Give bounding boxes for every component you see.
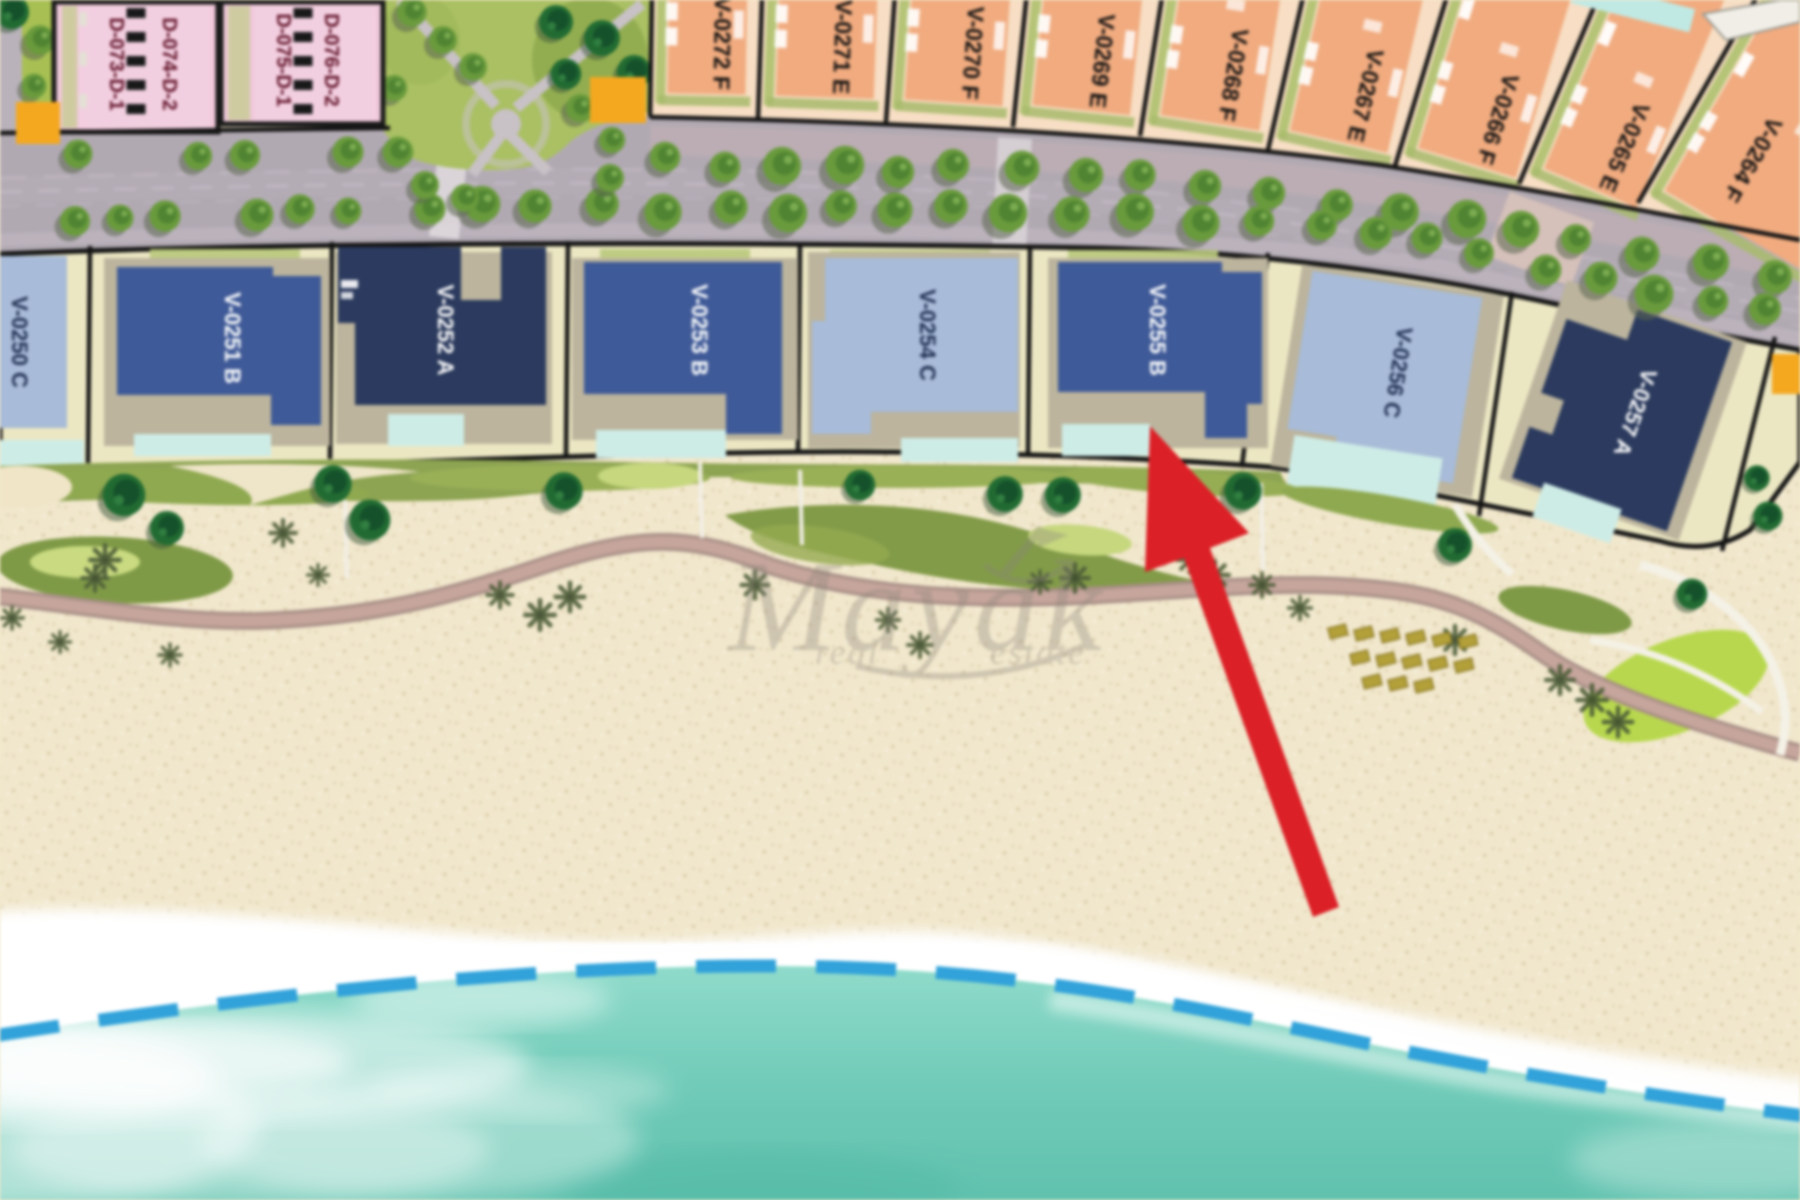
svg-text:D-076-D-2: D-076-D-2 xyxy=(320,13,342,106)
svg-text:V-0254 C: V-0254 C xyxy=(915,289,940,381)
svg-text:V-0250 C: V-0250 C xyxy=(7,296,32,388)
svg-text:real: real xyxy=(815,632,880,672)
svg-text:V-0272 F: V-0272 F xyxy=(708,0,736,90)
svg-text:D-075-D-1: D-075-D-1 xyxy=(272,13,294,106)
svg-text:V-0255 B: V-0255 B xyxy=(1145,284,1170,376)
svg-text:estate: estate xyxy=(990,632,1086,672)
svg-text:V-0252 A: V-0252 A xyxy=(433,285,458,376)
svg-text:V-0251 B: V-0251 B xyxy=(220,292,245,384)
svg-text:D-074-D-2: D-074-D-2 xyxy=(158,17,180,110)
svg-text:V-0271 E: V-0271 E xyxy=(828,0,857,95)
svg-text:V-0253 B: V-0253 B xyxy=(687,284,712,376)
svg-text:D-073-D-1: D-073-D-1 xyxy=(105,17,127,110)
